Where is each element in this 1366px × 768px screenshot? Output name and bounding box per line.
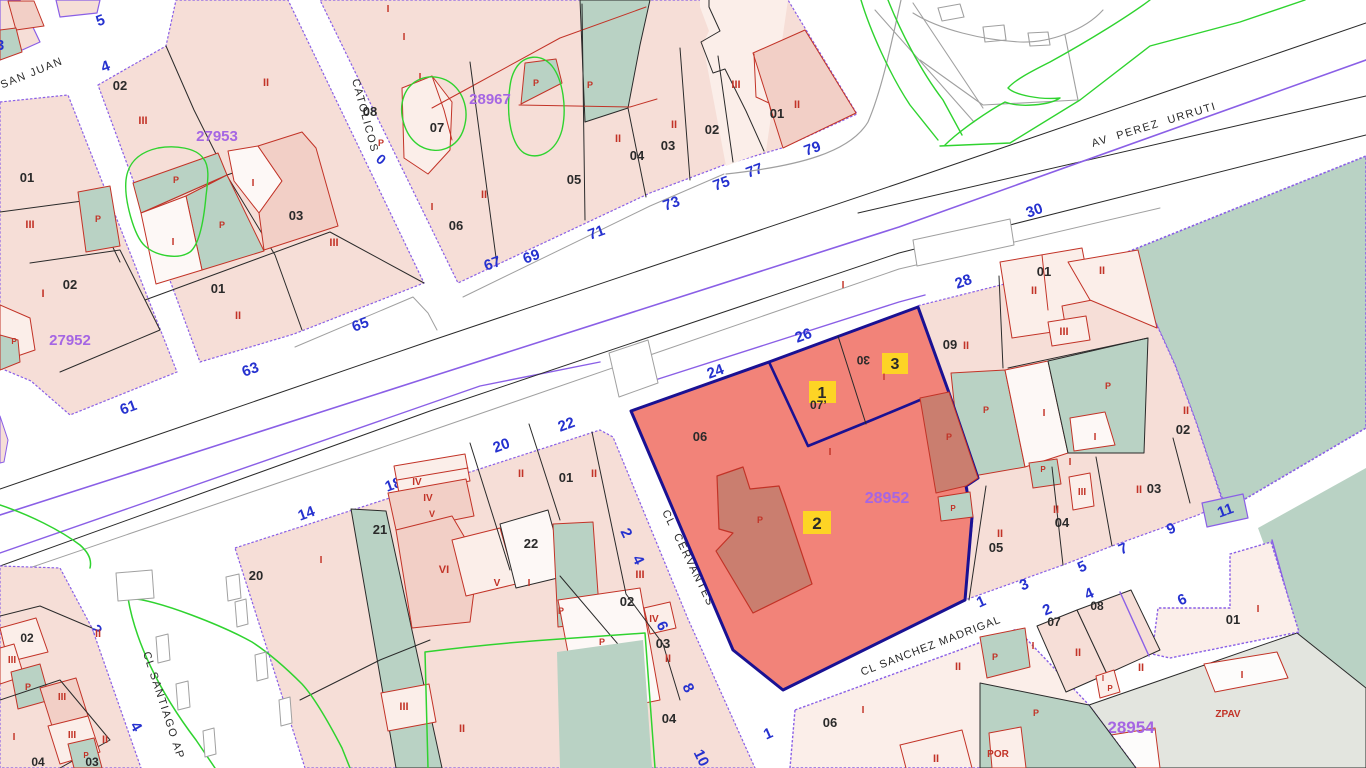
svg-text:II: II (1075, 647, 1081, 659)
svg-text:P: P (173, 175, 179, 185)
svg-text:III: III (329, 237, 338, 249)
svg-text:I: I (172, 237, 175, 248)
svg-text:P: P (1033, 708, 1039, 718)
svg-text:04: 04 (662, 711, 677, 726)
svg-text:I: I (1043, 408, 1046, 419)
svg-text:P: P (587, 80, 593, 90)
svg-text:ZPAV: ZPAV (1215, 709, 1241, 720)
svg-text:P: P (757, 515, 763, 525)
svg-text:22: 22 (524, 536, 538, 551)
svg-text:07: 07 (1047, 615, 1061, 629)
svg-text:02: 02 (1176, 422, 1190, 437)
svg-text:P: P (11, 337, 17, 346)
svg-text:07: 07 (430, 120, 444, 135)
svg-text:IV: IV (412, 477, 422, 488)
svg-text:VI: VI (439, 564, 449, 576)
svg-text:I: I (1102, 674, 1104, 683)
svg-text:III: III (399, 701, 408, 713)
svg-text:P: P (219, 220, 225, 230)
svg-text:I: I (403, 32, 406, 43)
svg-text:I: I (842, 280, 845, 291)
svg-text:21: 21 (373, 522, 387, 537)
svg-text:I: I (1032, 641, 1035, 652)
svg-text:II: II (263, 77, 269, 89)
svg-text:I: I (13, 732, 16, 743)
svg-text:III: III (68, 730, 77, 741)
svg-text:01: 01 (1037, 264, 1051, 279)
svg-text:03: 03 (661, 138, 675, 153)
svg-text:03: 03 (656, 636, 670, 651)
svg-text:I: I (387, 4, 390, 15)
svg-text:P: P (558, 606, 564, 616)
svg-text:II: II (933, 753, 939, 765)
svg-text:I: I (320, 555, 323, 566)
svg-text:II: II (1183, 405, 1189, 417)
svg-text:II: II (963, 340, 969, 352)
svg-text:I: I (528, 578, 531, 589)
svg-text:II: II (955, 661, 961, 673)
svg-text:III: III (635, 569, 644, 581)
svg-text:P: P (1105, 381, 1111, 391)
svg-text:28952: 28952 (865, 490, 910, 507)
svg-text:06: 06 (449, 218, 463, 233)
svg-text:05: 05 (567, 172, 581, 187)
svg-text:II: II (1031, 285, 1037, 297)
svg-text:II: II (518, 468, 524, 480)
svg-text:II: II (794, 99, 800, 111)
svg-text:27953: 27953 (196, 128, 238, 145)
svg-text:3: 3 (891, 356, 900, 373)
svg-text:P: P (25, 682, 31, 692)
svg-text:2: 2 (812, 514, 821, 533)
svg-text:08: 08 (1090, 599, 1104, 613)
svg-text:02: 02 (620, 594, 634, 609)
svg-text:III: III (8, 655, 17, 666)
svg-text:P: P (1040, 465, 1046, 474)
svg-text:III: III (731, 79, 740, 91)
svg-text:P: P (983, 405, 989, 415)
svg-text:04: 04 (31, 755, 45, 768)
svg-text:III: III (58, 692, 67, 703)
svg-text:I: I (252, 178, 255, 189)
svg-text:P: P (533, 78, 539, 88)
svg-text:POR: POR (987, 749, 1009, 760)
svg-text:IV: IV (423, 493, 433, 504)
svg-text:05: 05 (989, 540, 1003, 555)
svg-text:P: P (1107, 684, 1113, 693)
svg-text:P: P (946, 432, 952, 442)
svg-text:I: I (1069, 457, 1072, 468)
svg-text:II: II (615, 133, 621, 145)
svg-text:V: V (429, 509, 435, 519)
svg-text:II: II (671, 119, 677, 131)
svg-text:01: 01 (770, 106, 784, 121)
svg-text:02: 02 (20, 631, 34, 645)
svg-text:03: 03 (1147, 481, 1161, 496)
svg-text:II: II (95, 628, 101, 640)
svg-text:I: I (862, 705, 865, 716)
svg-text:3: 3 (0, 37, 4, 54)
svg-text:01: 01 (211, 281, 225, 296)
svg-text:II: II (481, 189, 487, 201)
svg-text:02: 02 (113, 78, 127, 93)
svg-text:II: II (1099, 265, 1105, 277)
svg-text:06: 06 (693, 429, 707, 444)
svg-text:02: 02 (63, 277, 77, 292)
svg-text:01: 01 (1226, 612, 1240, 627)
svg-text:27952: 27952 (49, 332, 91, 349)
svg-text:03: 03 (289, 208, 303, 223)
svg-text:02: 02 (705, 122, 719, 137)
svg-text:II: II (1136, 484, 1142, 496)
svg-text:III: III (25, 219, 34, 231)
svg-text:01: 01 (20, 170, 34, 185)
svg-text:I: I (1094, 432, 1097, 443)
svg-text:III: III (1059, 326, 1068, 338)
svg-text:II: II (997, 528, 1003, 540)
svg-text:II: II (665, 653, 671, 665)
svg-text:III: III (138, 115, 147, 127)
svg-text:30: 30 (856, 353, 870, 367)
svg-text:III: III (1078, 487, 1087, 498)
svg-text:03: 03 (85, 755, 99, 768)
svg-text:V: V (494, 578, 501, 589)
svg-text:09: 09 (943, 337, 957, 352)
svg-text:II: II (459, 723, 465, 735)
svg-text:I: I (1257, 604, 1260, 615)
svg-text:01: 01 (559, 470, 573, 485)
svg-text:04: 04 (1055, 515, 1070, 530)
svg-text:I: I (419, 72, 422, 83)
svg-text:P: P (950, 504, 956, 513)
svg-text:I: I (883, 372, 886, 382)
svg-text:28967: 28967 (469, 91, 511, 108)
svg-text:II: II (102, 734, 108, 746)
svg-text:P: P (95, 214, 101, 224)
svg-text:06: 06 (823, 715, 837, 730)
svg-text:II: II (1138, 662, 1144, 674)
svg-text:20: 20 (249, 568, 263, 583)
svg-text:I: I (1241, 670, 1244, 681)
svg-text:II: II (591, 468, 597, 480)
svg-text:I: I (829, 447, 832, 458)
svg-text:I: I (431, 202, 434, 213)
svg-text:II: II (235, 310, 241, 322)
svg-text:07’: 07’ (810, 398, 827, 412)
svg-text:I: I (41, 288, 44, 300)
svg-text:28954: 28954 (1107, 718, 1155, 737)
svg-text:P: P (992, 652, 998, 662)
